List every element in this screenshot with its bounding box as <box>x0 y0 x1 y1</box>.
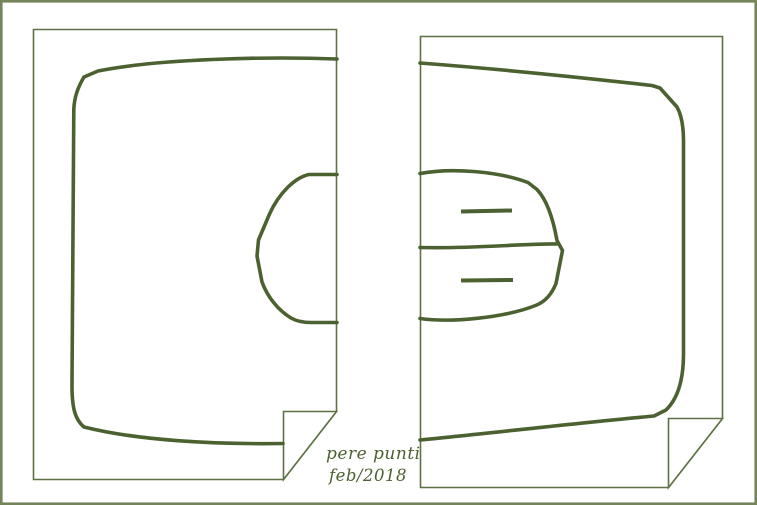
signature-date: feb/2018 <box>326 465 421 486</box>
notch-dash-lower <box>461 280 513 281</box>
pattern-drawing <box>0 0 757 505</box>
pattern-drawing-canvas: pere punti feb/2018 <box>0 0 757 505</box>
notch-dash-upper <box>461 211 512 212</box>
right-page-group <box>421 37 723 488</box>
signature: pere punti feb/2018 <box>326 444 421 486</box>
right-page-fold-corner-icon <box>669 419 723 488</box>
left-page-group <box>34 30 337 480</box>
signature-author: pere punti <box>326 444 421 465</box>
